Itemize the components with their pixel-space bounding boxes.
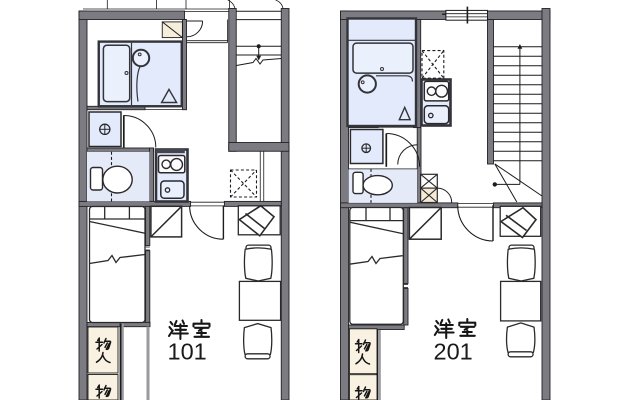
svg-text:101: 101 [168, 339, 207, 365]
svg-text:201: 201 [434, 339, 473, 365]
